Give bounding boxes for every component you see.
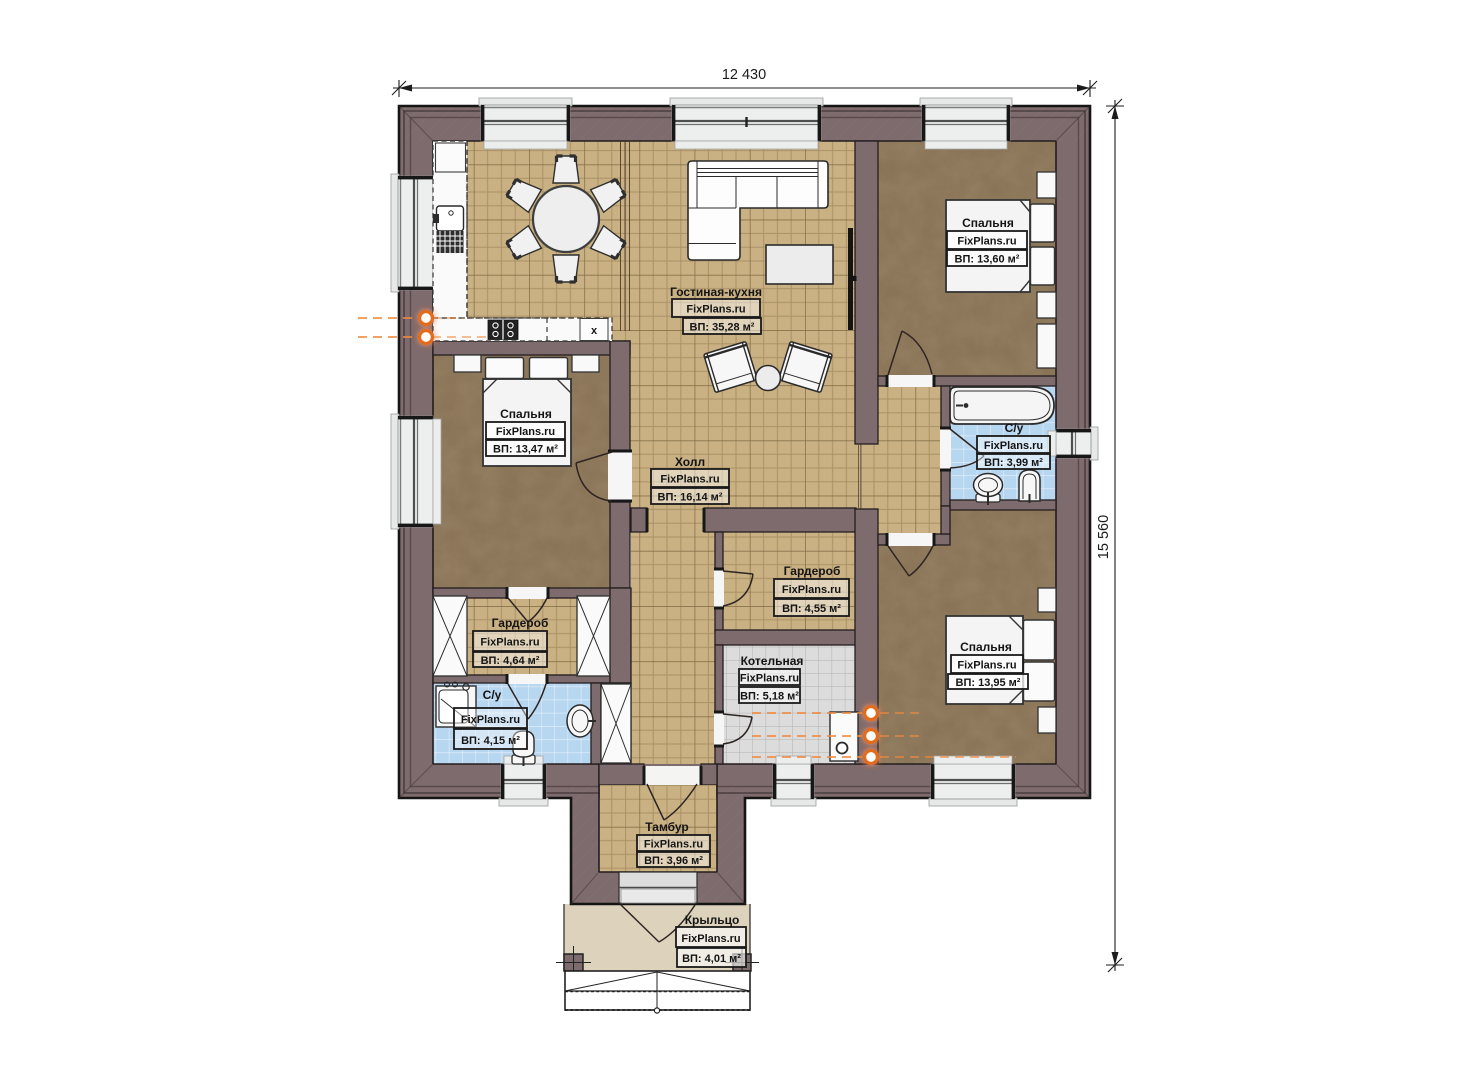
svg-text:15 560: 15 560	[1096, 515, 1112, 559]
svg-text:ВП: 13,95 м²: ВП: 13,95 м²	[956, 677, 1021, 689]
svg-text:FixPlans.ru: FixPlans.ru	[461, 714, 520, 726]
svg-text:ВП: 35,28 м²: ВП: 35,28 м²	[690, 322, 755, 334]
svg-text:Гардероб: Гардероб	[784, 564, 841, 578]
svg-text:FixPlans.ru: FixPlans.ru	[480, 637, 539, 649]
svg-text:FixPlans.ru: FixPlans.ru	[496, 426, 555, 438]
svg-text:FixPlans.ru: FixPlans.ru	[681, 933, 740, 945]
svg-text:Крыльцо: Крыльцо	[685, 913, 740, 927]
svg-text:ВП: 13,60 м²: ВП: 13,60 м²	[955, 254, 1020, 266]
svg-text:FixPlans.ru: FixPlans.ru	[660, 474, 719, 486]
svg-text:FixPlans.ru: FixPlans.ru	[984, 440, 1043, 452]
svg-text:ВП: 4,64 м²: ВП: 4,64 м²	[481, 655, 540, 667]
svg-text:ВП: 13,47 м²: ВП: 13,47 м²	[493, 444, 558, 456]
svg-text:Котельная: Котельная	[741, 654, 804, 668]
svg-text:С/у: С/у	[1005, 421, 1024, 435]
svg-text:x: x	[591, 325, 598, 337]
svg-text:ВП: 4,15 м²: ВП: 4,15 м²	[461, 735, 520, 747]
svg-text:С/у: С/у	[483, 688, 502, 702]
svg-text:FixPlans.ru: FixPlans.ru	[644, 839, 703, 851]
svg-text:ВП: 16,14 м²: ВП: 16,14 м²	[658, 492, 723, 504]
svg-text:Спальня: Спальня	[962, 216, 1014, 230]
svg-text:12 430: 12 430	[722, 67, 766, 83]
svg-text:FixPlans.ru: FixPlans.ru	[957, 660, 1016, 672]
svg-text:Холл: Холл	[675, 455, 705, 469]
svg-text:ВП: 3,96 м²: ВП: 3,96 м²	[644, 855, 703, 867]
svg-text:FixPlans.ru: FixPlans.ru	[782, 584, 841, 596]
svg-text:Спальня: Спальня	[500, 407, 552, 421]
svg-text:FixPlans.ru: FixPlans.ru	[957, 236, 1016, 248]
svg-text:ВП: 5,18 м²: ВП: 5,18 м²	[740, 691, 799, 703]
svg-text:Спальня: Спальня	[960, 640, 1012, 654]
svg-text:Тамбур: Тамбур	[645, 820, 689, 834]
svg-text:ВП: 4,01 м²: ВП: 4,01 м²	[682, 953, 741, 965]
svg-text:ВП: 3,99 м²: ВП: 3,99 м²	[984, 457, 1043, 469]
svg-text:FixPlans.ru: FixPlans.ru	[686, 304, 745, 316]
svg-text:Гардероб: Гардероб	[492, 616, 549, 630]
svg-text:FixPlans.ru: FixPlans.ru	[740, 673, 799, 685]
svg-text:ВП: 4,55 м²: ВП: 4,55 м²	[782, 603, 841, 615]
svg-text:Гостиная-кухня: Гостиная-кухня	[670, 285, 762, 299]
